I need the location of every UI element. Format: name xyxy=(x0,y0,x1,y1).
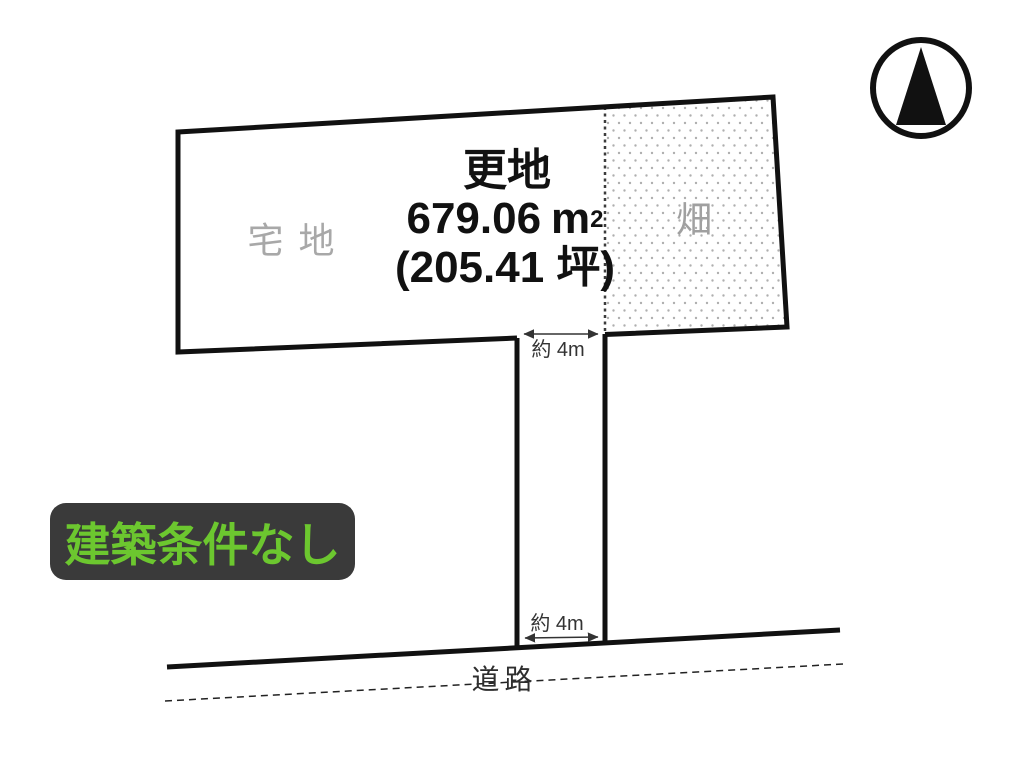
area-sqm-exponent: 2 xyxy=(590,206,603,233)
building-condition-badge-label: 建築条件なし xyxy=(65,509,341,575)
dimension-label-top: 約 4m xyxy=(531,340,584,360)
zoning-field-label: 畑 xyxy=(676,202,712,238)
dimension-label-bottom: 約 4m xyxy=(530,614,583,634)
vacant-land-label: 更地 xyxy=(463,149,551,193)
area-sqm-unit: m xyxy=(551,194,590,243)
land-plot-diagram: 更地 679.06m2 (205.41 坪) 宅地 畑 約 4m 約 4m 道路… xyxy=(0,0,1024,768)
zoning-residential-label: 宅地 xyxy=(232,223,349,259)
road-edge-line xyxy=(167,630,840,667)
area-sqm-value: 679.06 xyxy=(406,194,541,243)
area-tsubo-label: (205.41 坪) xyxy=(395,246,615,290)
north-arrow-icon xyxy=(873,40,969,136)
diagram-canvas xyxy=(0,0,1024,768)
area-sqm-label: 679.06m2 xyxy=(406,197,603,241)
road-label: 道路 xyxy=(466,666,537,694)
dimension-arrow-bottom xyxy=(525,637,598,638)
building-condition-badge: 建築条件なし xyxy=(50,503,355,580)
